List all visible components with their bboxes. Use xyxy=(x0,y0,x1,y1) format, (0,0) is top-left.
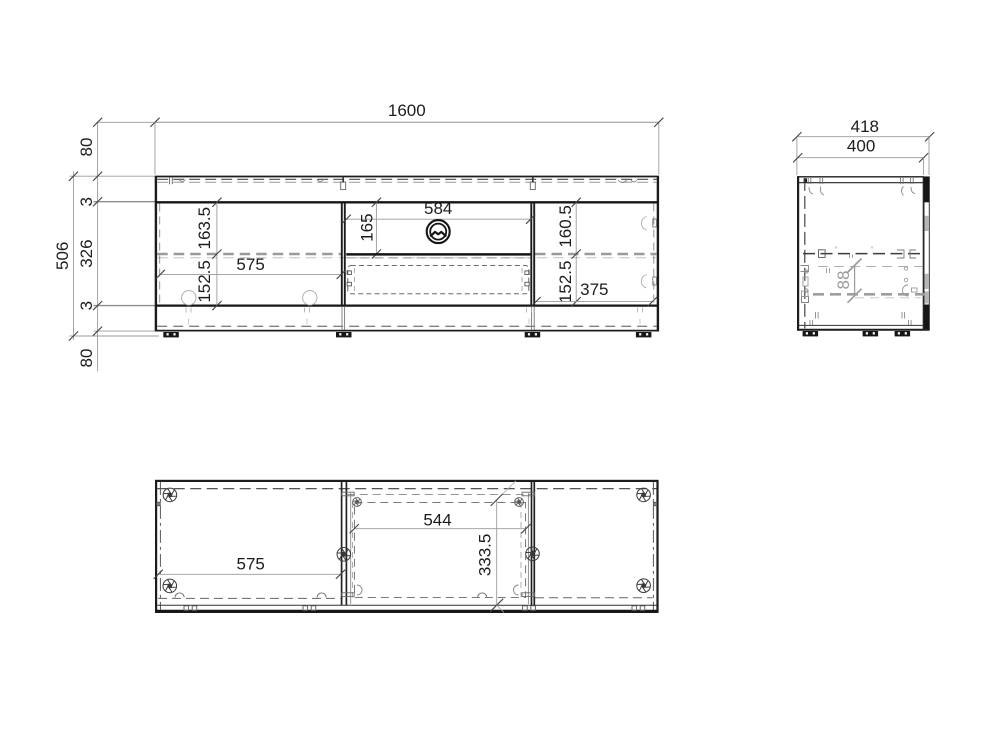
svg-text:152.5: 152.5 xyxy=(195,260,214,303)
svg-text:3: 3 xyxy=(77,301,96,310)
svg-text:584: 584 xyxy=(424,199,452,218)
svg-text:400: 400 xyxy=(847,137,875,156)
svg-text:418: 418 xyxy=(851,117,879,136)
svg-text:326: 326 xyxy=(77,239,96,267)
svg-text:506: 506 xyxy=(53,242,72,270)
svg-text:575: 575 xyxy=(236,255,264,274)
svg-text:80: 80 xyxy=(77,349,96,368)
svg-text:165: 165 xyxy=(357,213,376,241)
svg-text:375: 375 xyxy=(580,280,608,299)
svg-text:3: 3 xyxy=(77,197,96,206)
svg-text:160.5: 160.5 xyxy=(556,205,575,248)
svg-text:152.5: 152.5 xyxy=(556,261,575,304)
svg-text:544: 544 xyxy=(423,510,451,529)
svg-text:80: 80 xyxy=(77,138,96,157)
svg-text:575: 575 xyxy=(237,555,265,574)
svg-text:163.5: 163.5 xyxy=(195,207,214,250)
svg-text:1600: 1600 xyxy=(388,101,426,120)
svg-text:333.5: 333.5 xyxy=(476,534,495,577)
svg-text:88: 88 xyxy=(834,271,853,290)
